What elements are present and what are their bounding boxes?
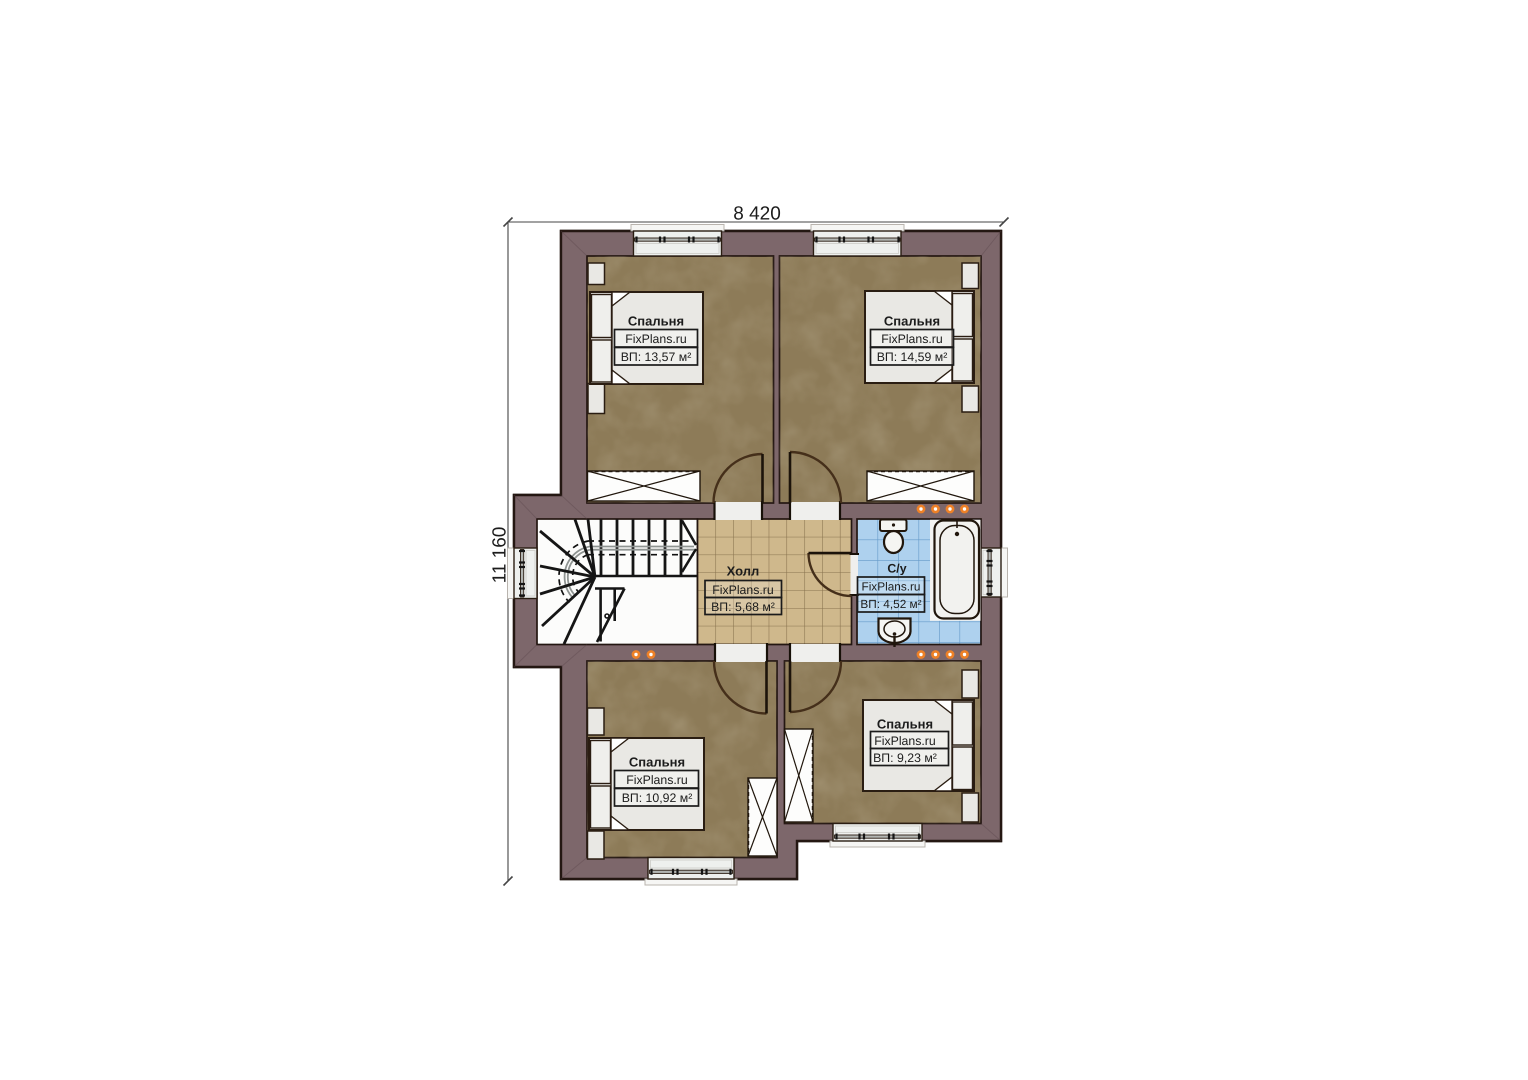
svg-text:FixPlans.ru: FixPlans.ru xyxy=(874,734,936,748)
svg-text:ВП: 14,59 м²: ВП: 14,59 м² xyxy=(877,350,948,364)
svg-text:С/у: С/у xyxy=(887,562,906,576)
svg-text:FixPlans.ru: FixPlans.ru xyxy=(626,773,688,787)
svg-text:FixPlans.ru: FixPlans.ru xyxy=(712,583,774,597)
svg-text:Спальня: Спальня xyxy=(628,314,684,329)
svg-text:FixPlans.ru: FixPlans.ru xyxy=(861,580,920,594)
svg-text:Спальня: Спальня xyxy=(877,717,933,732)
svg-text:ВП: 10,92 м²: ВП: 10,92 м² xyxy=(622,791,693,805)
svg-text:ВП: 4,52 м²: ВП: 4,52 м² xyxy=(860,597,921,611)
svg-text:ВП: 9,23 м²: ВП: 9,23 м² xyxy=(873,751,937,765)
svg-text:Холл: Холл xyxy=(727,564,760,579)
svg-text:8 420: 8 420 xyxy=(733,204,781,225)
svg-text:ВП: 5,68 м²: ВП: 5,68 м² xyxy=(711,600,775,614)
svg-text:Спальня: Спальня xyxy=(884,314,940,329)
svg-text:ВП: 13,57 м²: ВП: 13,57 м² xyxy=(621,350,692,364)
svg-text:FixPlans.ru: FixPlans.ru xyxy=(625,332,687,346)
svg-text:Спальня: Спальня xyxy=(629,755,685,770)
svg-text:FixPlans.ru: FixPlans.ru xyxy=(881,332,943,346)
